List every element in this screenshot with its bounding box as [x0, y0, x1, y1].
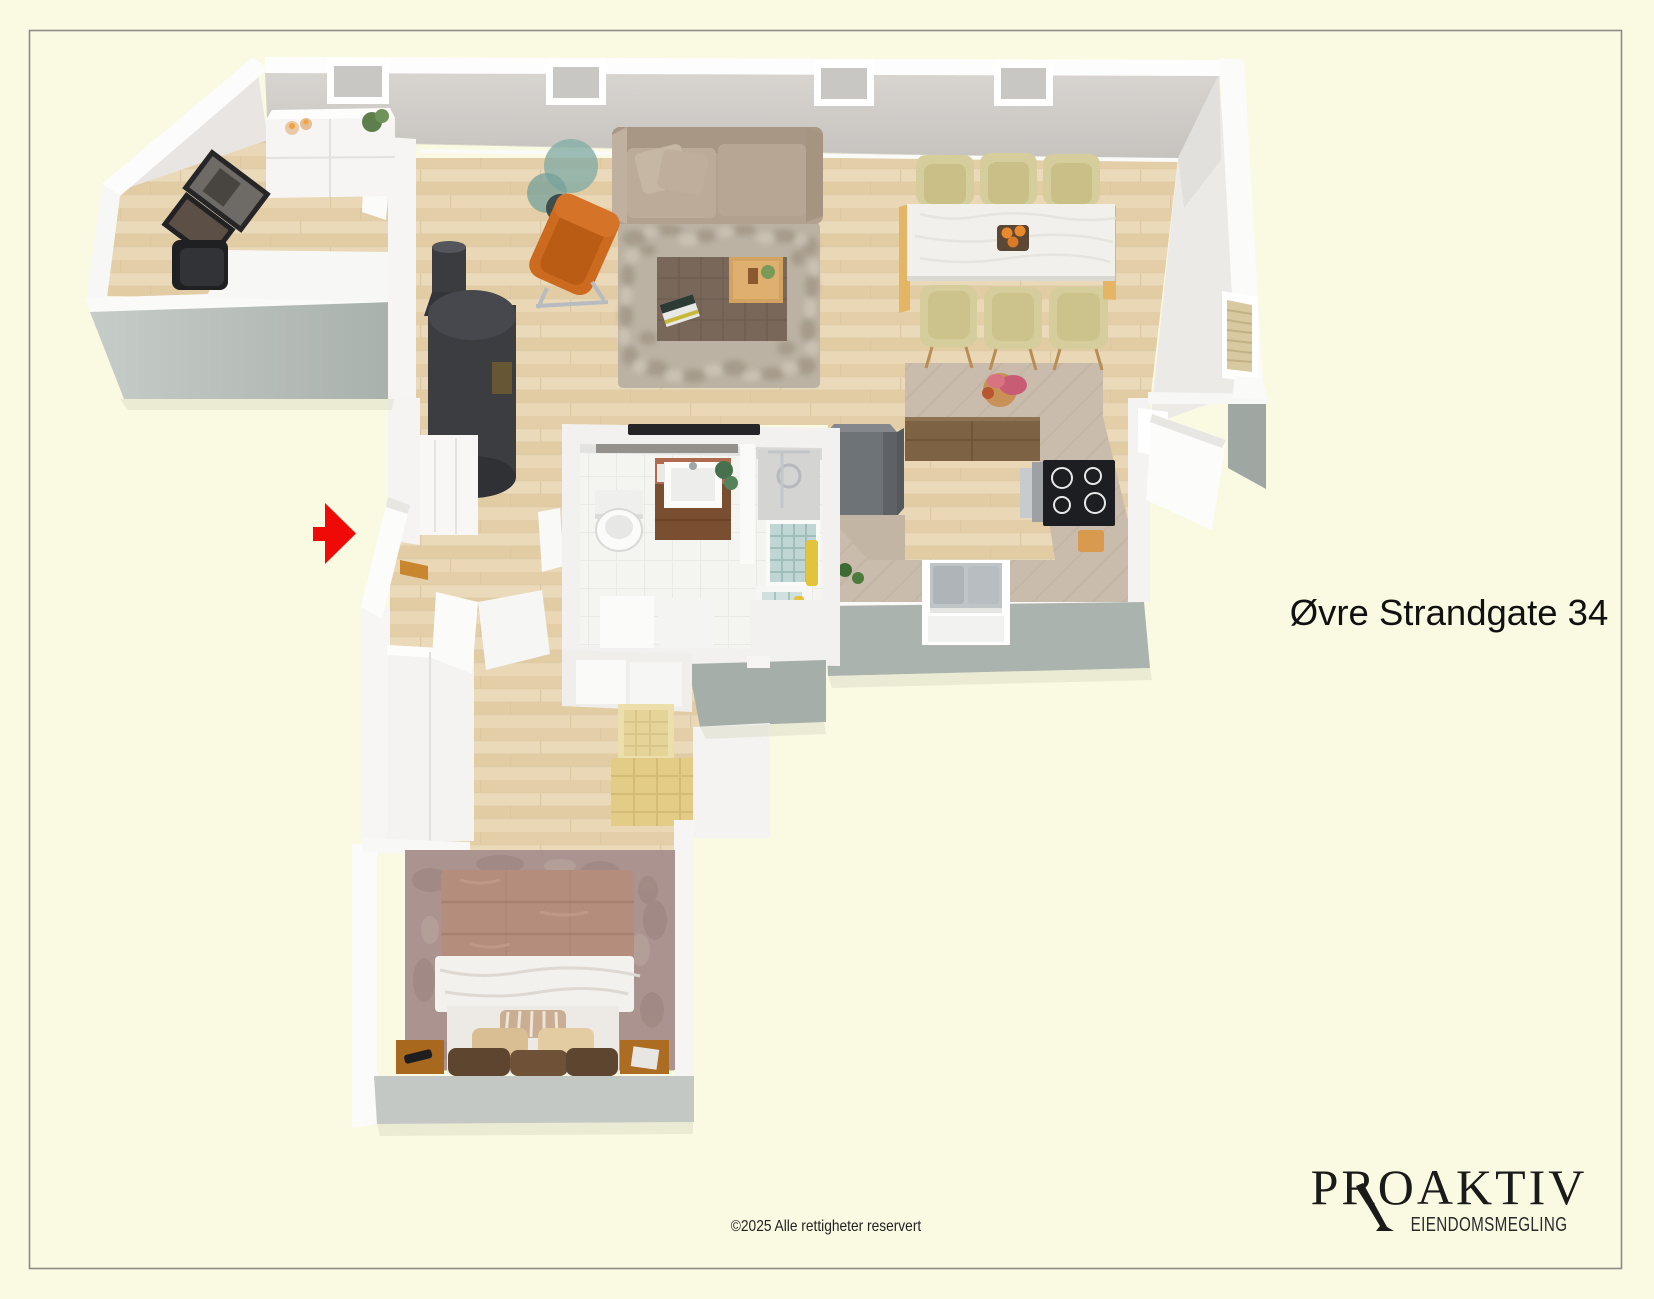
svg-text:PROAKTIV: PROAKTIV: [1311, 1159, 1588, 1215]
svg-text:©2025 Alle rettigheter reserve: ©2025 Alle rettigheter reservert: [731, 1217, 922, 1235]
svg-text:EIENDOMSMEGLING: EIENDOMSMEGLING: [1411, 1213, 1568, 1236]
svg-text:Øvre Strandgate 34: Øvre Strandgate 34: [1290, 592, 1609, 633]
